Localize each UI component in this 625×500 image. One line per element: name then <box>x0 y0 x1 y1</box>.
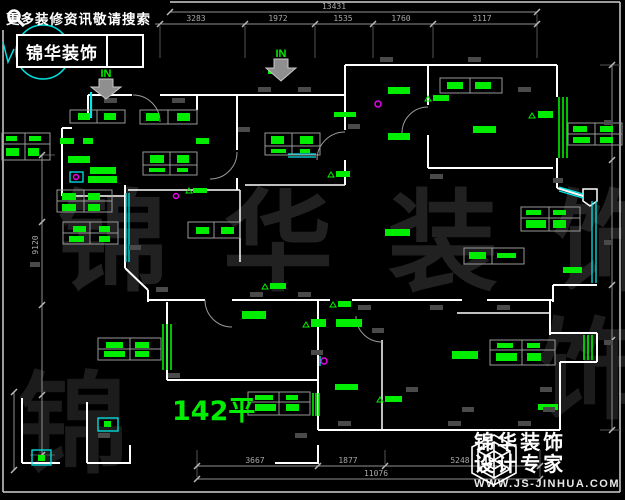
door-arcs <box>133 95 428 342</box>
dim-top-seg5: 3117 <box>472 14 491 23</box>
legend-tables <box>2 78 622 415</box>
dim-left-total: 9120 <box>31 235 40 254</box>
brand-search-box: 锦华装饰 <box>16 34 144 68</box>
dim-bottom-seg1: 3667 <box>245 456 264 465</box>
dim-bottom-total: 11076 <box>364 469 388 478</box>
entry-in-label-1: IN <box>276 48 287 60</box>
green-window-bars <box>163 97 592 416</box>
dim-top-total: 13431 <box>322 2 346 11</box>
dim-top-seg4: 1760 <box>391 14 410 23</box>
dim-top-seg2: 1972 <box>268 14 287 23</box>
brand-name: 锦华装饰 <box>18 36 106 66</box>
cube-hexagon-icon <box>468 432 520 488</box>
search-icon <box>106 36 142 66</box>
floorplan-drawing: 13431 3283 1972 1535 1760 3117 3667 1877… <box>0 0 625 500</box>
sheet-border <box>3 2 620 492</box>
tiny-dim-text-blocks <box>30 57 613 438</box>
dim-bottom-seg3: 5248 <box>450 456 469 465</box>
floor-area-label: 142平 <box>172 396 255 427</box>
entry-arrow-1: IN <box>266 48 296 81</box>
cad-floorplan-canvas: { "banner": { "tagline": "更多装修资讯敬请搜索", "… <box>0 0 625 500</box>
banner-tagline: 更多装修资讯敬请搜索 <box>6 8 151 28</box>
entry-in-label-2: IN <box>101 68 112 80</box>
dim-top-seg1: 3283 <box>186 14 205 23</box>
dim-bottom-seg2: 1877 <box>338 456 357 465</box>
company-logo: 锦华装饰 设计专家 WWW.JS-JINHUA.COM <box>468 432 620 490</box>
dim-top-seg3: 1535 <box>333 14 352 23</box>
windows <box>32 92 596 465</box>
triangle-markers <box>186 96 535 402</box>
promo-banner: 更多装修资讯敬请搜索 锦华装饰 <box>6 8 151 68</box>
